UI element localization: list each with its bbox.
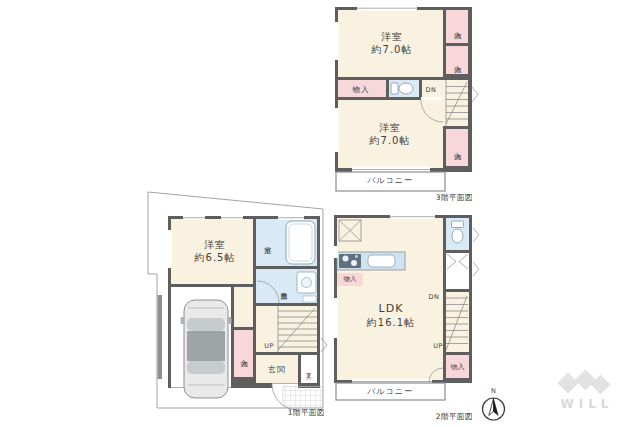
f1-caption: 1階平面図 [288, 408, 325, 417]
f3-closet-hall-label: 物入 [353, 84, 370, 93]
compass-icon [483, 398, 505, 420]
floor2-plan [334, 215, 480, 401]
car-roof [187, 331, 225, 361]
f2-stair-floor [446, 292, 469, 352]
will-logo-mark [558, 370, 611, 395]
f2-closet-kitchen-label: 物入 [344, 276, 357, 284]
f2-storage-room [446, 253, 469, 289]
f2-balcony-label: バルコニー [367, 387, 413, 397]
f3-room-bottom-size: 約7.0帖 [370, 135, 411, 147]
f1-door-arrow [321, 338, 327, 352]
car-windshield [187, 318, 225, 331]
f3-closet-right-bottom [446, 129, 468, 166]
f2-stairs-down-label: DN [429, 294, 440, 302]
f1-entrance-label: 玄関 [268, 365, 286, 375]
f3-caption: 3階平面図 [436, 193, 473, 202]
f3-balcony-label: バルコニー [367, 176, 413, 186]
floor1-plan [148, 192, 327, 410]
kitchen-counter [337, 252, 405, 270]
f1-closet [234, 330, 253, 377]
car-mirror [181, 317, 185, 324]
f2-storage-door-arrow [473, 262, 479, 276]
f3-closet-right-mid [446, 46, 468, 74]
f2-closet-south-label: 物入 [451, 362, 465, 370]
bathtub-icon [286, 221, 315, 264]
toilet-icon [452, 221, 464, 243]
f3-room-top-name: 洋室 [381, 31, 403, 43]
toilet-icon [391, 83, 413, 94]
f1-hall-floor [234, 287, 253, 327]
f3-room-bottom-floor [338, 100, 443, 168]
f1-room-name: 洋室 [204, 239, 226, 251]
entrance-approach-grid [283, 387, 323, 408]
f1-shoe-cabinet [301, 355, 317, 383]
floor3-plan [334, 6, 478, 191]
car-rear-window [187, 361, 225, 374]
will-logo-text: WILL [561, 396, 614, 410]
f3-stairs-down-label: DN [426, 87, 437, 95]
floor-plan-sheet: 洋室 約7.0帖 物入 物入 物入 DN 洋室 約7.0帖 物入 バルコニー 3… [0, 0, 640, 427]
f2-ldk-name: LDK [379, 302, 404, 315]
f3-room-bottom-name: 洋室 [379, 122, 401, 134]
car-mirror [228, 317, 232, 324]
f2-caption: 2階平面図 [436, 412, 473, 421]
f3-stair-arrow [472, 87, 478, 102]
car-icon [181, 300, 232, 398]
sink-icon [368, 255, 395, 267]
f2-ldk-floor [337, 218, 443, 380]
f1-room-size: 約6.5帖 [195, 252, 236, 264]
f2-toilet-door-arrow [473, 228, 479, 242]
f2-ldk-size: 約16.1帖 [367, 317, 415, 329]
f3-room-top-size: 約7.0帖 [372, 44, 413, 56]
floor-plan-drawing [0, 0, 640, 427]
f3-closet-right-top [446, 10, 468, 43]
f2-stairs-up-label: UP [433, 343, 443, 351]
f1-stairs-up-label: UP [264, 343, 274, 351]
compass-north-label: N [491, 388, 496, 396]
boundary-wall [158, 295, 163, 379]
